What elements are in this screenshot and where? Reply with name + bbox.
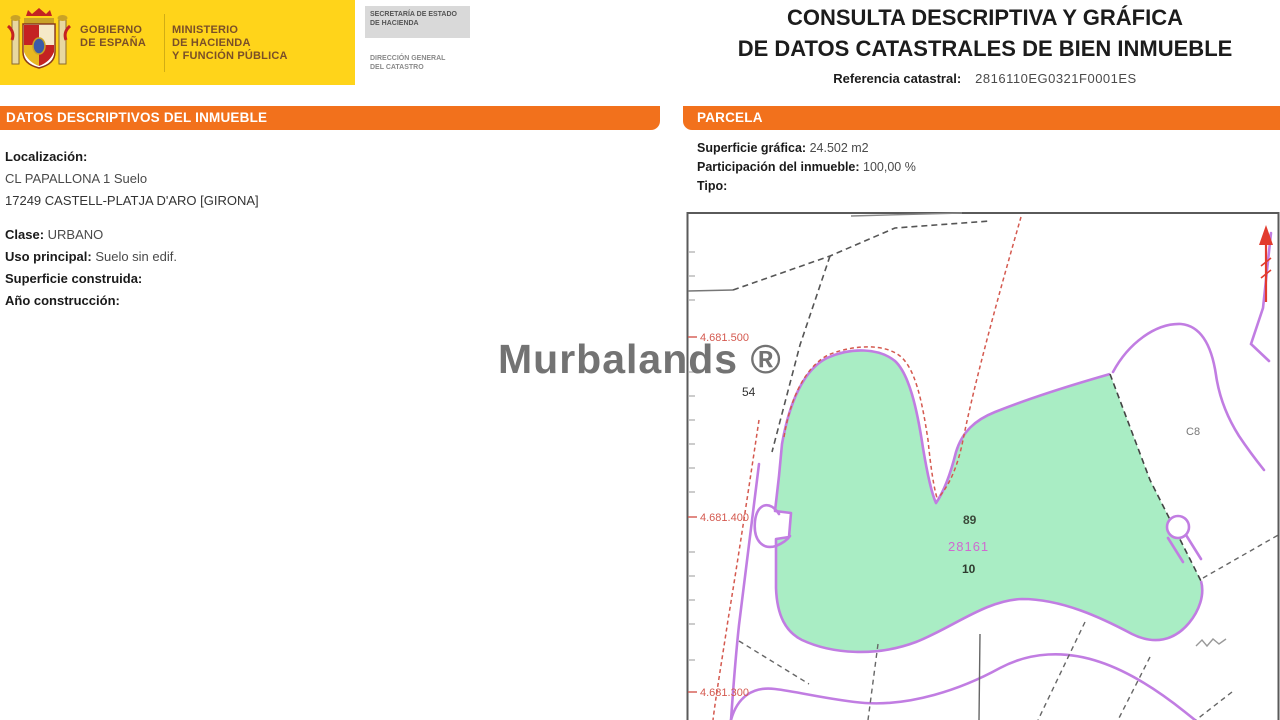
secretary-of-state-label: SECRETARÍA DE ESTADO DE HACIENDA bbox=[365, 6, 470, 38]
government-logo-block: GOBIERNO DE ESPAÑA MINISTERIO DE HACIEND… bbox=[0, 0, 355, 85]
uso-principal-label: Uso principal: bbox=[5, 249, 92, 264]
cadastral-map-canvas: 54 C8 89 28161 10 4.681.500 4.681.400 4.… bbox=[686, 211, 1280, 720]
construction-label: C8 bbox=[1186, 426, 1200, 438]
participacion-label: Participación del inmueble: bbox=[697, 160, 860, 174]
superficie-construida-label: Superficie construida: bbox=[5, 271, 142, 286]
neighbor-parcel-label: 54 bbox=[742, 385, 756, 399]
uso-principal-value: Suelo sin edif. bbox=[95, 249, 177, 264]
address-line-2: 17249 CASTELL-PLATJA D'ARO [GIRONA] bbox=[5, 192, 645, 210]
address-line-1: CL PAPALLONA 1 Suelo bbox=[5, 170, 645, 188]
government-name: GOBIERNO DE ESPAÑA bbox=[80, 24, 146, 50]
logo-divider bbox=[164, 14, 165, 72]
ano-construccion-label: Año construcción: bbox=[5, 293, 120, 308]
property-descriptive-data: Localización: CL PAPALLONA 1 Suelo 17249… bbox=[5, 148, 645, 314]
spain-coat-of-arms bbox=[6, 6, 72, 78]
parcel-number-label: 10 bbox=[962, 562, 976, 576]
directorate-general-label: DIRECCIÓN GENERAL DEL CATASTRO bbox=[365, 52, 470, 78]
parcela-data: Superficie gráfica: 24.502 m2 Participac… bbox=[697, 139, 1257, 196]
y-coordinate-label-2: 4.681.400 bbox=[700, 512, 749, 524]
tipo-label: Tipo: bbox=[697, 179, 727, 193]
clase-label: Clase: bbox=[5, 227, 44, 242]
section-header-parcela: PARCELA bbox=[683, 106, 1280, 130]
cadastral-reference-value: 2816110EG0321F0001ES bbox=[975, 71, 1137, 86]
localizacion-label: Localización: bbox=[5, 149, 87, 164]
cul-de-sac-bulb bbox=[1167, 516, 1189, 538]
section-header-datos-descriptivos: DATOS DESCRIPTIVOS DEL INMUEBLE bbox=[0, 106, 660, 130]
watermark: Murbalands ® bbox=[498, 336, 782, 383]
block-number-label: 28161 bbox=[948, 539, 989, 554]
cadastral-reference: Referencia catastral:2816110EG0321F0001E… bbox=[690, 71, 1280, 86]
participacion-value: 100,00 % bbox=[863, 160, 916, 174]
adjacent-parcel-label: 89 bbox=[963, 513, 977, 527]
cadastral-reference-label: Referencia catastral: bbox=[833, 71, 961, 86]
superficie-grafica-value: 24.502 m2 bbox=[810, 141, 869, 155]
ministry-name: MINISTERIO DE HACIENDA Y FUNCIÓN PÚBLICA bbox=[172, 24, 288, 63]
y-coordinate-label-3: 4.681.300 bbox=[700, 687, 749, 699]
superficie-grafica-label: Superficie gráfica: bbox=[697, 141, 806, 155]
cadastral-map: 54 C8 89 28161 10 4.681.500 4.681.400 4.… bbox=[686, 211, 1280, 720]
clase-value: URBANO bbox=[48, 227, 104, 242]
document-title: CONSULTA DESCRIPTIVA Y GRÁFICA DE DATOS … bbox=[690, 2, 1280, 64]
